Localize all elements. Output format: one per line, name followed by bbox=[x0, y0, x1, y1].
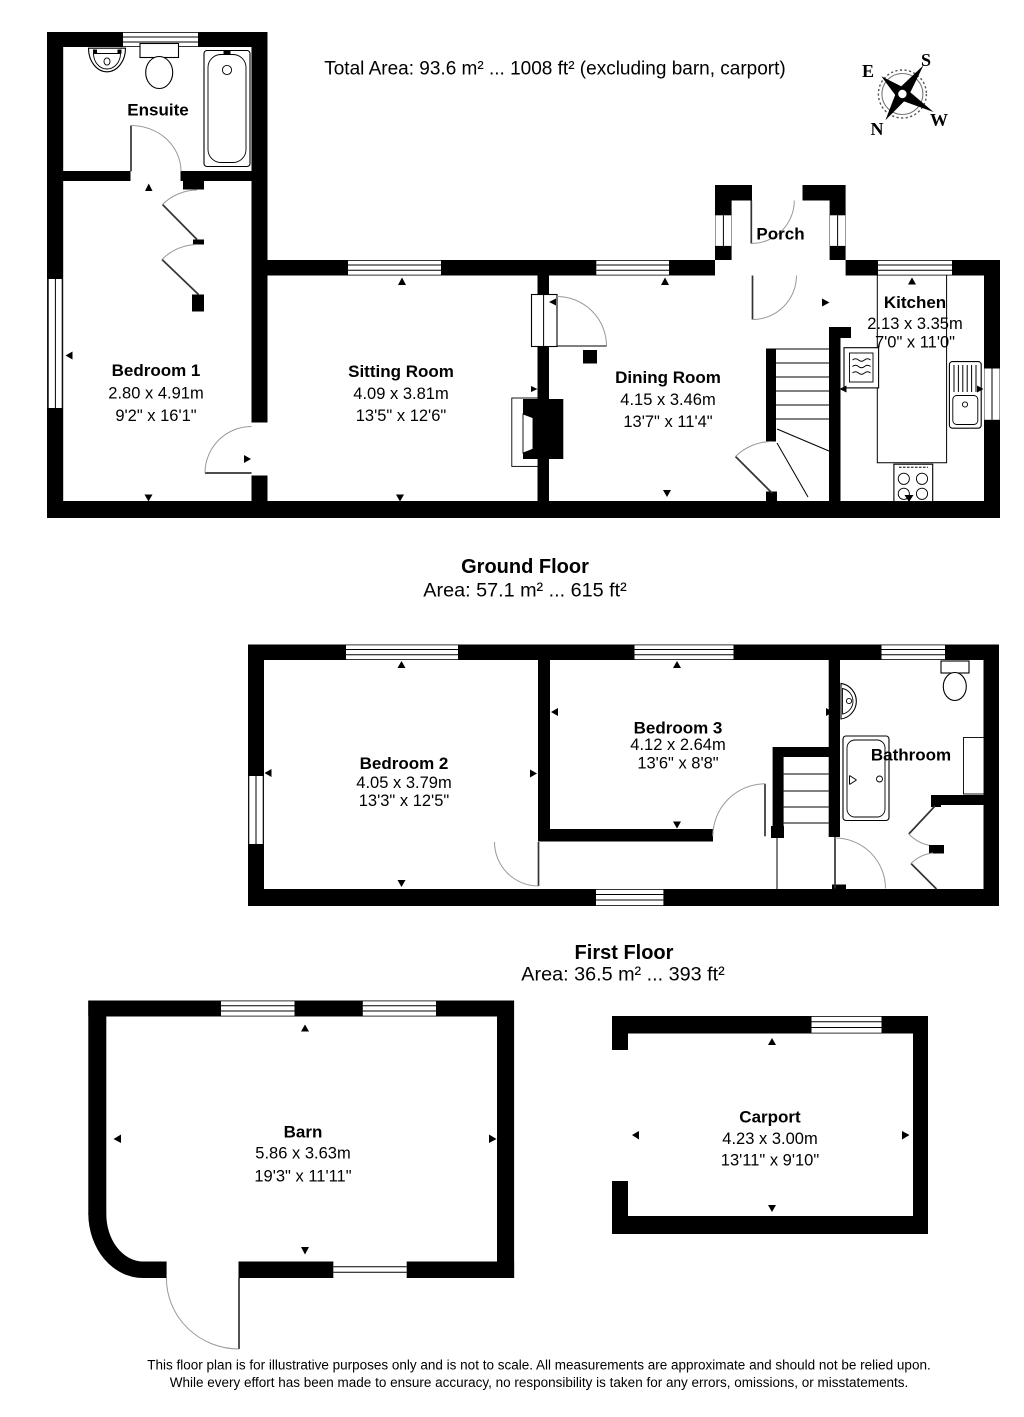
svg-text:Porch: Porch bbox=[756, 225, 804, 244]
svg-text:13'3" x 12'5": 13'3" x 12'5" bbox=[359, 792, 450, 810]
svg-text:Total Area: 93.6 m² ... 1008 f: Total Area: 93.6 m² ... 1008 ft² (exclud… bbox=[324, 59, 786, 80]
svg-text:4.05 x 3.79m: 4.05 x 3.79m bbox=[356, 774, 451, 792]
svg-text:7'0" x 11'0": 7'0" x 11'0" bbox=[875, 334, 955, 352]
svg-text:Kitchen: Kitchen bbox=[884, 293, 946, 312]
svg-text:4.09 x 3.81m: 4.09 x 3.81m bbox=[353, 385, 448, 403]
svg-text:Barn: Barn bbox=[284, 1123, 323, 1142]
svg-text:S: S bbox=[921, 50, 931, 70]
svg-text:Area: 36.5 m² ... 393 ft²: Area: 36.5 m² ... 393 ft² bbox=[521, 964, 725, 986]
svg-text:13'5" x 12'6": 13'5" x 12'6" bbox=[356, 407, 447, 425]
svg-text:13'6" x 8'8": 13'6" x 8'8" bbox=[637, 755, 718, 773]
svg-text:W: W bbox=[930, 110, 948, 130]
svg-text:19'3" x 11'11": 19'3" x 11'11" bbox=[254, 1168, 351, 1186]
svg-text:While every effort has been ma: While every effort has been made to ensu… bbox=[170, 1375, 909, 1390]
svg-text:5.86 x 3.63m: 5.86 x 3.63m bbox=[255, 1145, 350, 1163]
svg-text:Carport: Carport bbox=[739, 1108, 801, 1127]
svg-text:Sitting Room: Sitting Room bbox=[348, 362, 454, 381]
svg-text:13'11" x 9'10": 13'11" x 9'10" bbox=[721, 1152, 820, 1170]
svg-text:First Floor: First Floor bbox=[575, 942, 674, 964]
svg-text:Ensuite: Ensuite bbox=[127, 101, 188, 120]
svg-text:N: N bbox=[871, 119, 884, 139]
svg-text:9'2" x 16'1": 9'2" x 16'1" bbox=[115, 407, 196, 425]
svg-text:4.15 x 3.46m: 4.15 x 3.46m bbox=[620, 391, 715, 409]
svg-text:2.13 x 3.35m: 2.13 x 3.35m bbox=[867, 315, 962, 333]
svg-text:Bedroom 3: Bedroom 3 bbox=[634, 719, 723, 738]
svg-text:E: E bbox=[862, 61, 874, 81]
svg-text:Area: 57.1 m² ... 615 ft²: Area: 57.1 m² ... 615 ft² bbox=[423, 580, 627, 602]
svg-text:Bedroom 2: Bedroom 2 bbox=[360, 754, 449, 773]
svg-text:13'7" x 11'4": 13'7" x 11'4" bbox=[623, 413, 712, 431]
svg-text:4.23 x 3.00m: 4.23 x 3.00m bbox=[722, 1130, 817, 1148]
svg-text:Dining Room: Dining Room bbox=[615, 368, 721, 387]
svg-text:This floor plan is for illustr: This floor plan is for illustrative purp… bbox=[147, 1358, 930, 1373]
svg-text:2.80 x 4.91m: 2.80 x 4.91m bbox=[108, 385, 203, 403]
svg-text:Bathroom: Bathroom bbox=[871, 746, 951, 765]
svg-text:Bedroom 1: Bedroom 1 bbox=[112, 361, 201, 380]
svg-text:4.12 x 2.64m: 4.12 x 2.64m bbox=[630, 736, 725, 754]
svg-text:Ground Floor: Ground Floor bbox=[461, 556, 589, 578]
